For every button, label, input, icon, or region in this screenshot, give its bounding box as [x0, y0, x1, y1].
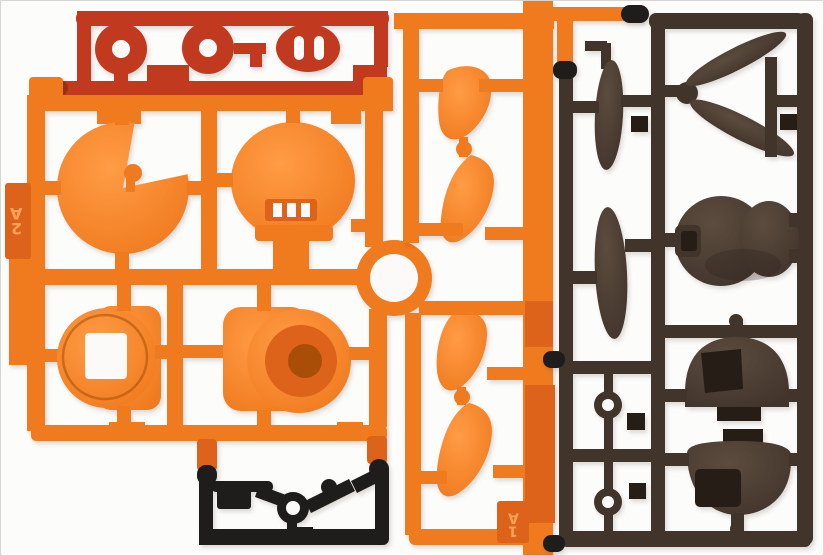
- gate-tab: [571, 271, 597, 284]
- part-torso-socket-hole: [681, 231, 697, 251]
- frame-rail: [557, 9, 573, 67]
- part-dome-shell: [231, 122, 355, 240]
- grille-slit: [287, 203, 296, 217]
- gate-tab: [604, 460, 613, 490]
- part-fin-blade: [592, 206, 631, 339]
- part-tube-ball: [321, 479, 337, 495]
- frame-rail: [37, 269, 393, 285]
- frame-rail: [77, 11, 91, 91]
- gate-tab: [217, 173, 233, 187]
- grille-slit: [301, 203, 310, 217]
- gate-tab: [789, 213, 801, 227]
- gate-tab: [419, 79, 443, 92]
- gate-tab: [787, 389, 799, 402]
- gate-tab: [621, 95, 653, 107]
- gate-tab: [45, 181, 61, 195]
- gate-tab: [479, 79, 523, 92]
- frame-rail: [29, 95, 393, 111]
- part-tube-loop-hole: [286, 501, 300, 515]
- part-oval-grommet: [276, 24, 340, 72]
- gate-tab: [286, 107, 300, 123]
- orange-runner-a2: [5, 77, 432, 471]
- gate-tab: [625, 239, 653, 252]
- gate-tab: [789, 453, 799, 466]
- part-knob-stem: [126, 179, 135, 192]
- gate-tab: [117, 285, 131, 311]
- gate-tab: [147, 65, 189, 84]
- part-helmet-window: [695, 469, 741, 507]
- gate-tab: [257, 285, 271, 311]
- gate-tab: [493, 465, 523, 478]
- part-fin-blade: [592, 59, 626, 170]
- gate-tab: [487, 367, 523, 380]
- gate-tab: [117, 406, 131, 428]
- gate-tab: [257, 410, 271, 428]
- part-shoulder-disc: [57, 122, 189, 254]
- gate-tab: [604, 372, 613, 394]
- gate-tab: [419, 223, 463, 236]
- frame-rail: [405, 313, 421, 513]
- part-eyelet-hole: [602, 399, 614, 411]
- runners-illustration: [1, 1, 824, 556]
- part-drum-hole: [85, 333, 127, 379]
- sprue-joint: [543, 535, 565, 552]
- part-shading: [705, 249, 781, 281]
- part-tube-stub: [287, 521, 297, 535]
- frame-rail: [797, 13, 813, 545]
- gate-tab: [631, 116, 648, 132]
- gate-tab: [780, 114, 797, 130]
- part-knob: [730, 522, 744, 536]
- part-oval-slot: [314, 36, 324, 60]
- frame-rail: [374, 11, 388, 67]
- gate-tab: [765, 57, 777, 157]
- part-disc-hole: [199, 39, 217, 57]
- gate-tab: [627, 413, 645, 430]
- part-eyelet-hole: [602, 496, 614, 508]
- gate-tab: [183, 345, 223, 358]
- gate-tab: [115, 107, 129, 125]
- gate-tab: [571, 101, 599, 113]
- part-tube-block: [217, 489, 251, 509]
- red-runner: [54, 11, 389, 101]
- gate-tab: [419, 301, 523, 315]
- gate-tab: [155, 345, 171, 359]
- a2-tab: [5, 183, 31, 259]
- gate-tab: [421, 471, 447, 484]
- gate-tab: [604, 514, 613, 534]
- frame-rail: [363, 77, 393, 111]
- frame-rail: [31, 425, 387, 441]
- part-helmet-tab: [717, 407, 761, 421]
- frame-rail: [561, 531, 811, 547]
- part-blade-bar: [525, 385, 555, 523]
- part-cylinder-hole: [288, 344, 322, 378]
- gate-tab: [663, 389, 687, 402]
- gate-tab: [629, 483, 646, 499]
- gate-tab: [585, 41, 607, 51]
- runner-ring-hole: [370, 254, 418, 302]
- gate-tab: [337, 422, 363, 436]
- gate-tab: [665, 85, 683, 97]
- gate-tab: [485, 227, 523, 240]
- frame-rail: [369, 309, 387, 427]
- gate-tab: [665, 233, 679, 247]
- gate-tab: [331, 111, 361, 124]
- gate-tab: [273, 239, 309, 271]
- part-oval-slot: [294, 36, 304, 60]
- part-disc-hole: [112, 40, 130, 58]
- gate-tab: [250, 51, 262, 67]
- part-foot-wedge: [437, 311, 487, 390]
- brown-runner: [543, 5, 813, 552]
- part-knob: [456, 141, 472, 157]
- a1-tab: [497, 501, 529, 543]
- frame-rail: [59, 81, 381, 96]
- sprue-joint: [543, 351, 565, 368]
- photo-model-kit-runners: A2 A1: [0, 0, 824, 556]
- part-tube-stub: [297, 527, 313, 539]
- frame-rail: [559, 71, 573, 539]
- gate-tab: [661, 453, 689, 466]
- black-runner: [197, 459, 389, 545]
- gate-tab: [351, 219, 369, 232]
- gate-tab: [115, 252, 129, 274]
- frame-rail: [201, 109, 217, 271]
- part-knob: [454, 389, 470, 405]
- part-foot-wedge: [438, 66, 491, 139]
- gate-tab: [187, 181, 203, 195]
- frame-rail: [649, 13, 805, 29]
- grille-slit: [273, 203, 282, 217]
- gate-tab: [789, 249, 801, 263]
- gate-tab: [604, 417, 613, 451]
- gate-tab: [349, 347, 371, 360]
- part-blade-bar: [525, 301, 553, 347]
- part-dome-skirt: [255, 225, 333, 241]
- part-helmet-window: [701, 349, 743, 393]
- sprue-joint: [553, 61, 577, 79]
- sprue-joint: [621, 5, 649, 23]
- frame-rail: [403, 13, 419, 243]
- gate-tab: [777, 95, 801, 107]
